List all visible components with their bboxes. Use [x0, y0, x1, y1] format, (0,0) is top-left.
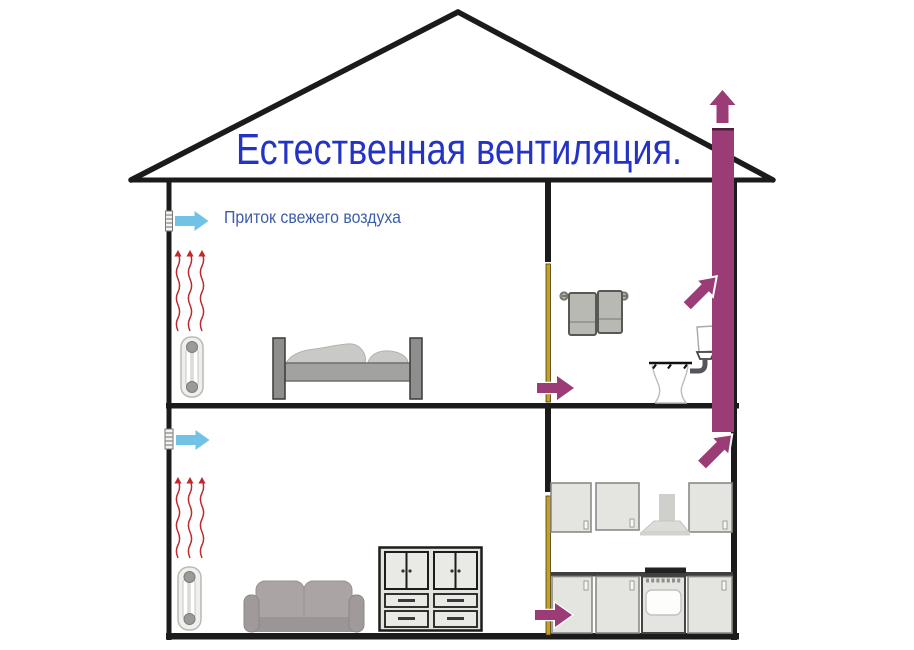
svg-text:Приток свежего воздуха: Приток свежего воздуха	[224, 207, 401, 227]
svg-text:Естественная вентиляция.: Естественная вентиляция.	[236, 125, 682, 174]
